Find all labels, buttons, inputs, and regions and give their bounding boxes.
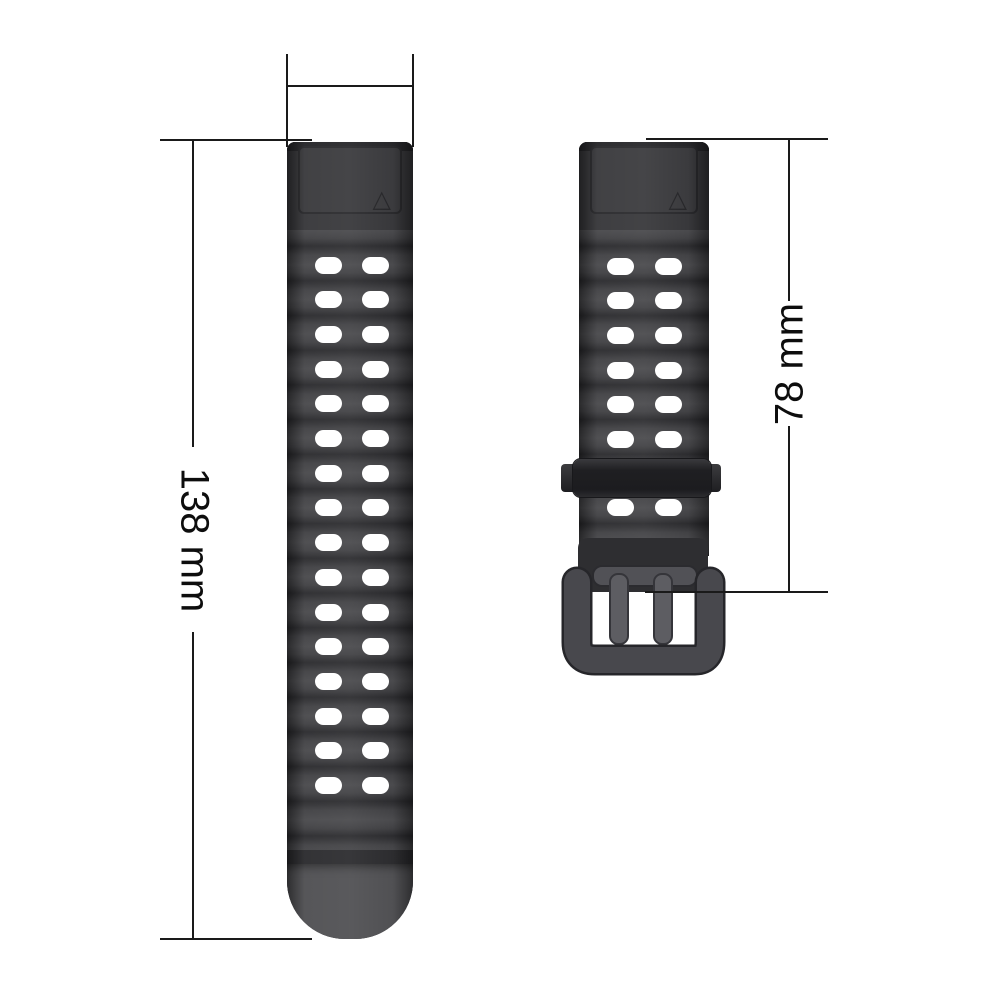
length-dimension-tick (160, 938, 312, 940)
strap-hole (315, 569, 342, 586)
strap-hole (655, 292, 682, 309)
buckle-graphic (552, 536, 738, 686)
strap-hole (315, 534, 342, 551)
buckle-pin-bar (593, 566, 697, 586)
buckle-frame (577, 582, 710, 660)
triangle-mark-icon: △ (373, 187, 391, 211)
length-dimension-label: 138 mm (172, 468, 217, 613)
strap-end-band (287, 850, 413, 864)
strap-hole (362, 291, 389, 308)
triangle-mark-icon: △ (669, 187, 687, 211)
left-strap: △ (287, 142, 413, 939)
strap-hole (655, 258, 682, 275)
watch-band-dimension-diagram: △ △ 1 (0, 0, 1000, 1000)
strap-hole (607, 258, 634, 275)
strap-hole (607, 396, 634, 413)
strap-hole (362, 395, 389, 412)
strap-hole (315, 257, 342, 274)
strap-hole (362, 569, 389, 586)
strap-hole (655, 499, 682, 516)
strap-hole (362, 638, 389, 655)
strap-tip (287, 864, 413, 939)
strap-hole (607, 292, 634, 309)
strap-hole (315, 777, 342, 794)
length-dimension-line (192, 141, 194, 447)
buckle-dimension-line (788, 140, 790, 301)
strap-hole (315, 604, 342, 621)
width-dimension-line (286, 85, 414, 87)
strap-hole (362, 326, 389, 343)
buckle-dimension-line (788, 426, 790, 591)
strap-lug-end: △ (579, 142, 709, 230)
strap-ridges (579, 230, 709, 556)
strap-hole (607, 431, 634, 448)
lug-panel: △ (298, 146, 402, 214)
buckle-dimension-tick (646, 138, 828, 140)
strap-hole (315, 499, 342, 516)
strap-hole (655, 431, 682, 448)
strap-hole (315, 361, 342, 378)
length-dimension-line (192, 632, 194, 939)
buckle-prong (654, 574, 672, 644)
strap-hole (362, 604, 389, 621)
strap-ridges (287, 230, 413, 850)
strap-hole (655, 327, 682, 344)
strap-hole (362, 499, 389, 516)
strap-hole (315, 708, 342, 725)
strap-hole (315, 638, 342, 655)
buckle-dimension-tick (645, 591, 828, 593)
buckle (552, 536, 738, 686)
strap-lug-end: △ (287, 142, 413, 230)
strap-hole (607, 327, 634, 344)
strap-hole (655, 396, 682, 413)
strap-hole (315, 430, 342, 447)
strap-hole (315, 465, 342, 482)
buckle-prong (610, 574, 628, 644)
keeper-loop (573, 459, 711, 497)
strap-hole (362, 742, 389, 759)
strap-hole (315, 395, 342, 412)
strap-hole (607, 499, 634, 516)
strap-hole (362, 777, 389, 794)
width-dimension-line (286, 54, 288, 147)
length-dimension-tick (160, 139, 312, 141)
strap-hole (362, 534, 389, 551)
lug-panel: △ (590, 146, 698, 214)
strap-hole (315, 673, 342, 690)
strap-hole (362, 257, 389, 274)
strap-hole (362, 673, 389, 690)
buckle-dimension-label: 78 mm (768, 303, 813, 425)
strap-hole (315, 291, 342, 308)
strap-hole (362, 708, 389, 725)
strap-hole (315, 742, 342, 759)
strap-hole (607, 362, 634, 379)
strap-hole (655, 362, 682, 379)
strap-hole (362, 465, 389, 482)
width-dimension-line (412, 54, 414, 147)
strap-hole (315, 326, 342, 343)
strap-hole (362, 361, 389, 378)
strap-hole (362, 430, 389, 447)
